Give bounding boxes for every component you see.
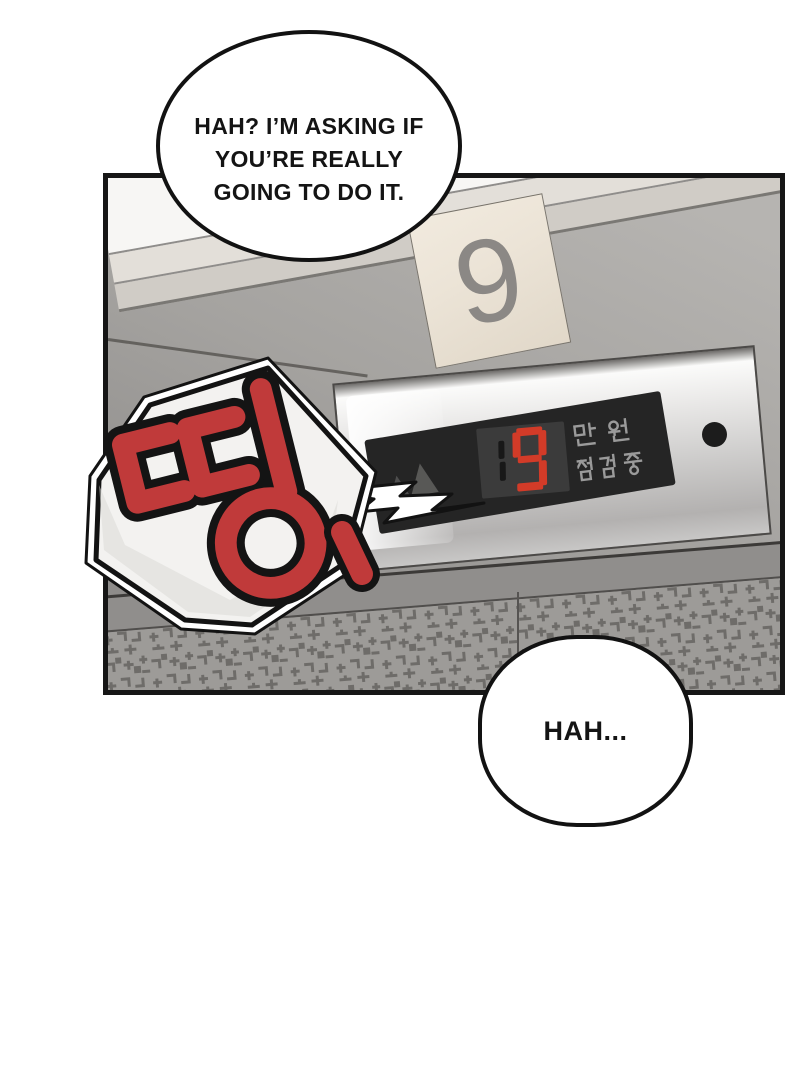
floor-number-sign: 9 xyxy=(407,193,571,369)
display-korean-labels: 만 원 점검중 xyxy=(572,413,672,495)
sfx-burst xyxy=(80,350,400,650)
korean-label-glyphs xyxy=(572,413,671,490)
panel-button-dot xyxy=(702,422,727,447)
speech-text-top: HAH? I’M ASKING IF YOU’RE REALLY GOING T… xyxy=(194,84,423,209)
speech-bubble-bottom: HAH... xyxy=(478,635,693,827)
speech-text-bottom: HAH... xyxy=(544,716,628,747)
floor-number: 9 xyxy=(446,217,533,345)
speech-bubble-top: HAH? I’M ASKING IF YOU’RE REALLY GOING T… xyxy=(156,30,462,262)
speech-line: YOU’RE REALLY xyxy=(194,143,423,176)
sfx-text: 띵! xyxy=(0,0,1,1)
speech-line: HAH? I’M ASKING IF xyxy=(194,110,423,143)
speech-line: GOING TO DO IT. xyxy=(194,176,423,209)
comic-page: 9 19 xyxy=(0,0,792,1080)
